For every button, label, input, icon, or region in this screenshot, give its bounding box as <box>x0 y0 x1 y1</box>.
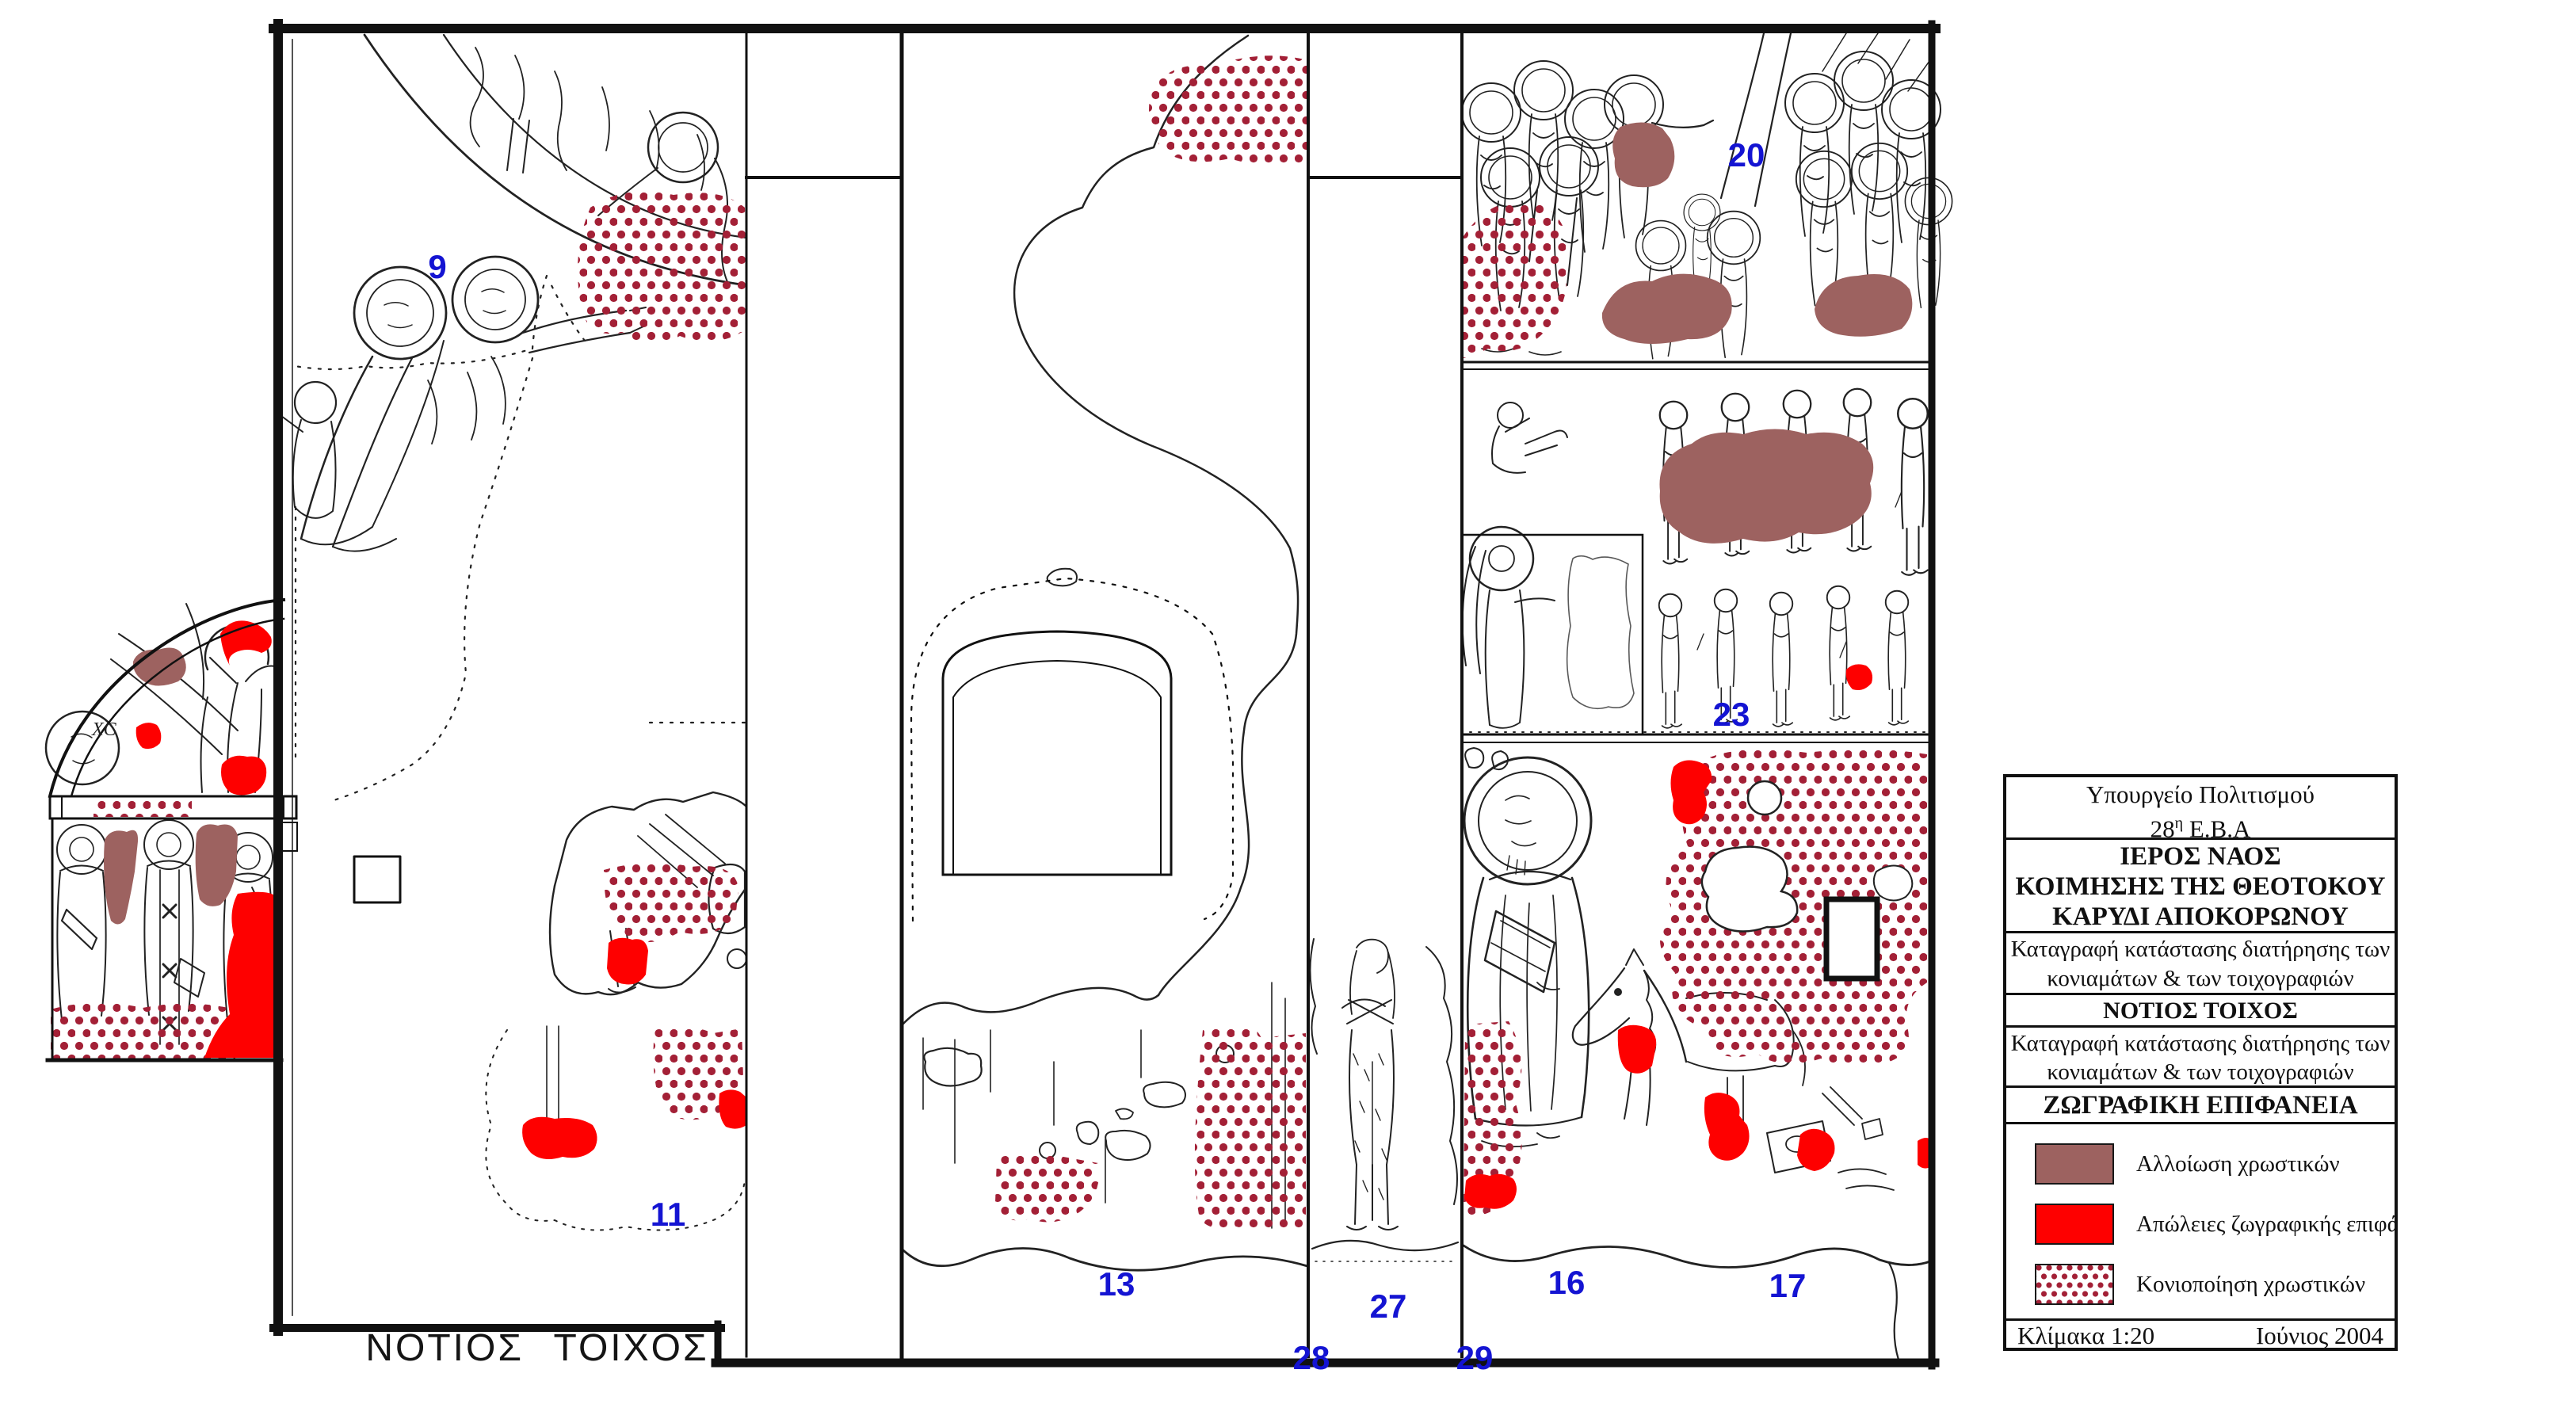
wall-socket-square <box>354 857 400 902</box>
wall-section-row: ΝΟΤΙΟΣ ΤΟΙΧΟΣ <box>2006 995 2395 1028</box>
alteration-swatch <box>2035 1143 2114 1185</box>
powdering-patch-scene9 <box>578 192 746 345</box>
scale-label: Κλίμακα 1:20 <box>2017 1321 2154 1352</box>
scene-number-11: 11 <box>651 1198 685 1231</box>
loss-swatch <box>2035 1204 2114 1245</box>
paint-loss-patches <box>136 620 1932 1208</box>
powdering-patch-scene11-a <box>604 863 738 942</box>
church-line-2: ΚΟΙΜΗΣΗΣ ΤΗΣ ΘΕΟΤΟΚΟΥ <box>2006 872 2395 902</box>
legend-item-alteration: Αλλοίωση χρωστικών <box>2035 1134 2395 1194</box>
ministry-name: Υπουργείο Πολιτισμού <box>2006 780 2395 809</box>
legend-rows: Αλλοίωση χρωστικών Απώλειες ζωγραφικής ε… <box>2006 1124 2395 1321</box>
legend-item-powdering: Κονιοποίηση χρωστικών <box>2035 1254 2395 1314</box>
scene-number-9: 9 <box>428 250 446 284</box>
scene23-inner-frame <box>1462 535 1643 734</box>
scene-11-sketch <box>354 792 746 1230</box>
church-line-1: ΙΕΡΟΣ ΝΑΟΣ <box>2006 841 2395 872</box>
window-inner <box>953 661 1161 875</box>
scene-9-sketch <box>281 35 746 802</box>
scene-number-23: 23 <box>1713 698 1750 731</box>
window-outer <box>943 631 1171 875</box>
loss-apse-register <box>204 892 279 1058</box>
ministry-row: Υπουργείο Πολιτισμού 28η Ε.Β.Α <box>2006 777 2395 840</box>
surface-header-row: ΖΩΓΡΑΦΙΚΗ ΕΠΙΦΑΝΕΙΑ <box>2006 1088 2395 1124</box>
document-page: 9 11 13 27 28 29 16 17 20 23 ΝΟΤΙΟΣ ΤΟΙΧ… <box>0 0 2576 1404</box>
alteration-scene20-left <box>1602 274 1732 344</box>
wall-niche <box>1826 899 1877 979</box>
apse-inscription: ΧϹ <box>92 719 116 741</box>
powdering-patch-apse-cornice <box>93 799 192 817</box>
window-plaster-boundary <box>911 578 1233 921</box>
church-name-row: ΙΕΡΟΣ ΝΑΟΣ ΚΟΙΜΗΣΗΣ ΤΗΣ ΘΕΟΤΟΚΟΥ ΚΑΡΥΔΙ … <box>2006 840 2395 933</box>
powdering-swatch <box>2035 1264 2114 1305</box>
powdering-patch-scene13-a <box>995 1152 1099 1222</box>
alteration-scene20-right <box>1815 274 1912 337</box>
powdering-label: Κονιοποίηση χρωστικών <box>2136 1272 2365 1298</box>
scale-date-row: Κλίμακα 1:20 Ιούνιος 2004 <box>2006 1321 2395 1352</box>
powdering-patch-scene20 <box>1464 201 1567 358</box>
ephorate-name: 28η Ε.Β.Α <box>2006 809 2395 840</box>
date-label: Ιούνιος 2004 <box>2256 1321 2383 1352</box>
alteration-patches <box>104 122 1912 924</box>
church-line-3: ΚΑΡΥΔΙ ΑΠΟΚΟΡΩΝΟΥ <box>2006 902 2395 932</box>
scene-number-20: 20 <box>1728 139 1765 172</box>
scene-number-27: 27 <box>1370 1290 1407 1323</box>
powdering-patch-mid-top <box>1149 55 1307 165</box>
scene-number-28: 28 <box>1293 1341 1330 1375</box>
alteration-scene20-vase <box>1612 122 1674 187</box>
alteration-scene23-large <box>1660 429 1874 544</box>
legend-item-loss: Απώλειες ζωγραφικής επιφάνειας <box>2035 1194 2395 1254</box>
scene-27-sketch <box>1310 939 1458 1261</box>
scene-number-16: 16 <box>1548 1266 1586 1299</box>
record-row-2: Καταγραφή κατάστασης διατήρησης των κονι… <box>2006 1028 2395 1088</box>
scene-number-17: 17 <box>1769 1269 1807 1303</box>
alteration-label: Αλλοίωση χρωστικών <box>2136 1151 2340 1177</box>
scene-number-29: 29 <box>1456 1341 1494 1375</box>
wall-structure <box>48 24 1936 1366</box>
wall-label: ΝΟΤΙΟΣ ΤΟΙΧΟΣ <box>358 1331 716 1366</box>
record-row-1: Καταγραφή κατάστασης διατήρησης των κονι… <box>2006 933 2395 995</box>
scene-number-13: 13 <box>1098 1268 1135 1301</box>
powdering-patch-scene13-b <box>1195 1024 1306 1231</box>
title-block: Υπουργείο Πολιτισμού 28η Ε.Β.Α ΙΕΡΟΣ ΝΑΟ… <box>2003 774 2398 1351</box>
loss-label: Απώλειες ζωγραφικής επιφάνειας <box>2136 1211 2395 1238</box>
